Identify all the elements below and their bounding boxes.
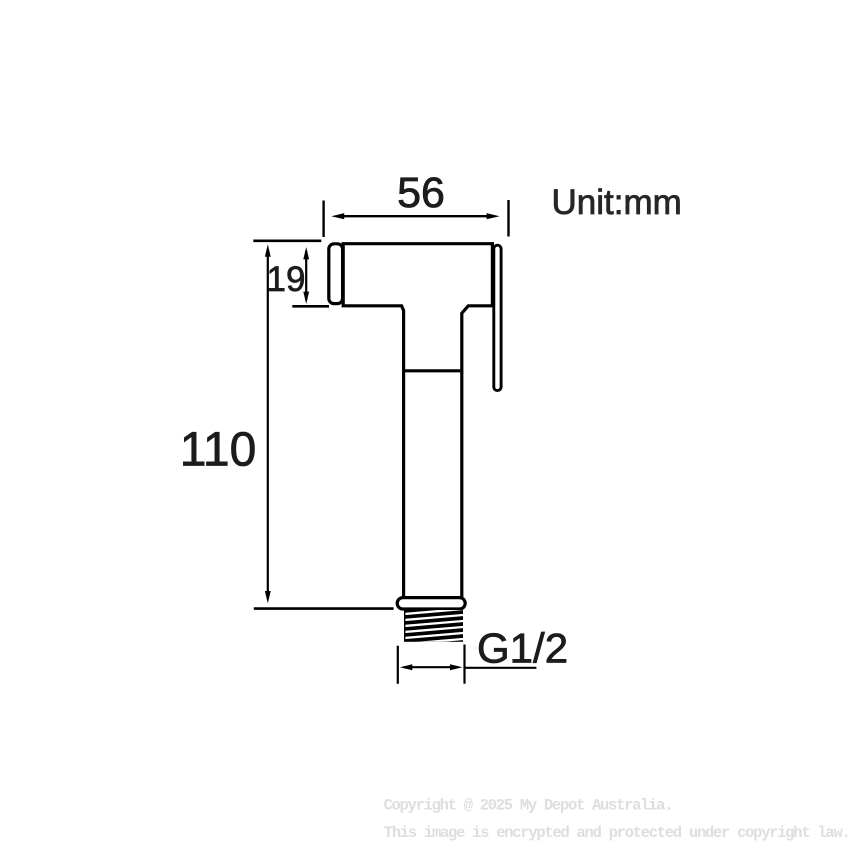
svg-text:Unit:mm: Unit:mm bbox=[552, 183, 682, 222]
svg-text:19: 19 bbox=[267, 260, 306, 299]
svg-text:G1/2: G1/2 bbox=[477, 625, 568, 672]
svg-text:110: 110 bbox=[180, 424, 257, 477]
svg-text:This image is encrypted and pr: This image is encrypted and protected un… bbox=[384, 824, 850, 842]
svg-text:Copyright @ 2025 My Depot Aust: Copyright @ 2025 My Depot Australia. bbox=[384, 796, 674, 814]
svg-text:56: 56 bbox=[397, 169, 445, 217]
